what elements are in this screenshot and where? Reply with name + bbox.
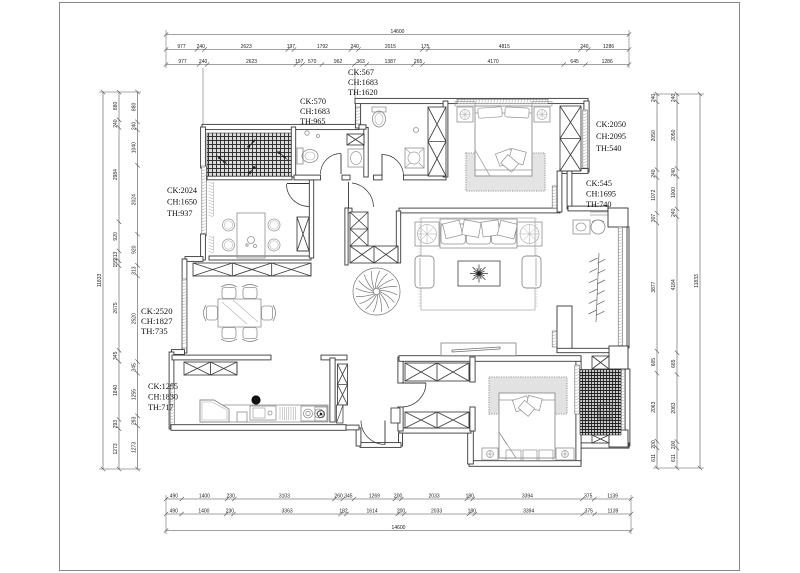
svg-text:1792: 1792: [317, 44, 328, 50]
svg-text:1255: 1255: [132, 389, 138, 400]
svg-text:3877: 3877: [651, 281, 657, 292]
svg-text:CK:1255: CK:1255: [148, 382, 178, 391]
svg-text:307: 307: [651, 214, 657, 223]
svg-text:155: 155: [113, 259, 119, 268]
svg-text:3394: 3394: [523, 508, 534, 514]
svg-text:880: 880: [132, 103, 138, 112]
svg-text:363: 363: [356, 59, 365, 65]
svg-text:1139: 1139: [608, 508, 619, 514]
svg-text:TH:540: TH:540: [596, 144, 621, 153]
svg-text:180: 180: [468, 508, 477, 514]
svg-text:293: 293: [113, 420, 119, 429]
svg-text:611: 611: [671, 454, 677, 462]
svg-text:180: 180: [466, 493, 475, 499]
svg-text:1000: 1000: [671, 187, 677, 198]
svg-text:200: 200: [397, 508, 406, 514]
svg-text:200: 200: [394, 493, 403, 499]
svg-text:1139: 1139: [607, 493, 618, 499]
svg-text:490: 490: [170, 508, 179, 514]
svg-text:CK:567: CK:567: [348, 68, 374, 77]
svg-text:240: 240: [197, 44, 206, 50]
svg-text:1072: 1072: [651, 190, 657, 201]
svg-text:240: 240: [351, 44, 360, 50]
svg-text:345: 345: [132, 363, 138, 372]
svg-text:TH:735: TH:735: [141, 326, 168, 336]
svg-text:4170: 4170: [488, 59, 499, 65]
svg-text:CH:1830: CH:1830: [148, 393, 178, 402]
svg-text:TH:965: TH:965: [300, 117, 325, 126]
svg-text:197: 197: [295, 59, 304, 65]
svg-text:265: 265: [414, 59, 423, 65]
svg-text:880: 880: [113, 102, 119, 111]
svg-text:1269: 1269: [369, 493, 380, 499]
svg-text:2033: 2033: [429, 493, 440, 499]
svg-text:920: 920: [113, 232, 119, 241]
svg-text:2675: 2675: [113, 302, 119, 313]
svg-text:2015: 2015: [385, 44, 396, 50]
svg-text:CK:2520: CK:2520: [141, 306, 173, 316]
svg-text:200: 200: [671, 441, 677, 450]
svg-text:977: 977: [178, 59, 187, 65]
svg-text:CH:1827: CH:1827: [141, 316, 173, 326]
svg-text:1273: 1273: [132, 442, 138, 453]
svg-text:1387: 1387: [385, 59, 396, 65]
svg-text:2063: 2063: [651, 401, 657, 412]
svg-text:3394: 3394: [522, 493, 533, 499]
svg-text:CH:1683: CH:1683: [348, 78, 378, 87]
svg-text:230: 230: [227, 493, 236, 499]
svg-text:3363: 3363: [282, 508, 293, 514]
svg-text:490: 490: [170, 493, 179, 499]
svg-text:14600: 14600: [392, 525, 406, 531]
svg-text:1614: 1614: [367, 508, 378, 514]
svg-text:1286: 1286: [602, 59, 613, 65]
svg-text:345: 345: [344, 493, 353, 499]
svg-text:2050: 2050: [651, 130, 657, 141]
svg-text:11833: 11833: [97, 274, 103, 288]
svg-text:2050: 2050: [671, 129, 677, 140]
svg-text:TH:717: TH:717: [148, 403, 173, 412]
svg-text:240: 240: [671, 208, 677, 217]
svg-text:CK:2050: CK:2050: [596, 120, 626, 129]
svg-text:611: 611: [651, 454, 657, 462]
svg-text:240: 240: [113, 119, 119, 128]
svg-text:313: 313: [132, 266, 138, 275]
svg-text:1400: 1400: [199, 493, 210, 499]
svg-text:3103: 3103: [279, 493, 290, 499]
svg-text:2623: 2623: [246, 59, 257, 65]
svg-text:175: 175: [421, 44, 430, 50]
svg-text:182: 182: [339, 508, 348, 514]
svg-text:4184: 4184: [671, 279, 677, 290]
svg-text:260: 260: [334, 493, 343, 499]
svg-text:962: 962: [334, 59, 343, 65]
svg-text:2024: 2024: [132, 194, 138, 205]
svg-text:230: 230: [226, 508, 235, 514]
svg-text:197: 197: [287, 44, 296, 50]
svg-text:CH:2095: CH:2095: [596, 132, 626, 141]
svg-text:11833: 11833: [694, 274, 700, 288]
svg-text:2063: 2063: [671, 402, 677, 413]
svg-text:665: 665: [671, 359, 677, 368]
svg-text:CH:1695: CH:1695: [586, 190, 616, 199]
svg-text:240: 240: [651, 94, 657, 103]
svg-text:1400: 1400: [198, 508, 209, 514]
svg-text:TH:740: TH:740: [586, 200, 611, 209]
svg-text:240: 240: [671, 168, 677, 177]
svg-text:240: 240: [199, 59, 208, 65]
svg-text:375: 375: [585, 508, 594, 514]
svg-text:977: 977: [177, 44, 186, 50]
svg-text:240: 240: [671, 94, 677, 103]
svg-text:1273: 1273: [113, 443, 119, 454]
svg-text:2520: 2520: [132, 313, 138, 324]
svg-text:345: 345: [113, 351, 119, 360]
svg-text:920: 920: [132, 245, 138, 254]
svg-text:200: 200: [651, 440, 657, 449]
svg-text:1840: 1840: [113, 385, 119, 396]
svg-text:CH:1683: CH:1683: [300, 107, 330, 116]
svg-text:2033: 2033: [431, 508, 442, 514]
svg-text:4815: 4815: [499, 44, 510, 50]
svg-text:CK:2024: CK:2024: [167, 186, 197, 195]
svg-text:645: 645: [570, 59, 579, 65]
svg-text:240: 240: [651, 169, 657, 178]
svg-text:TH:1620: TH:1620: [348, 88, 378, 97]
svg-text:313: 313: [113, 252, 119, 261]
svg-text:1286: 1286: [603, 44, 614, 50]
svg-text:375: 375: [584, 493, 593, 499]
svg-text:240: 240: [580, 44, 589, 50]
svg-text:1040: 1040: [132, 142, 138, 153]
svg-text:665: 665: [651, 358, 657, 367]
svg-text:2984: 2984: [113, 169, 119, 180]
svg-text:14600: 14600: [391, 29, 405, 35]
svg-text:CK:545: CK:545: [586, 179, 612, 188]
svg-text:2623: 2623: [241, 44, 252, 50]
svg-text:240: 240: [132, 122, 138, 131]
svg-text:CH:1650: CH:1650: [167, 198, 197, 207]
svg-text:570: 570: [308, 59, 317, 65]
svg-text:293: 293: [132, 416, 138, 425]
svg-text:TH:937: TH:937: [167, 209, 192, 218]
svg-text:CK:570: CK:570: [300, 97, 326, 106]
